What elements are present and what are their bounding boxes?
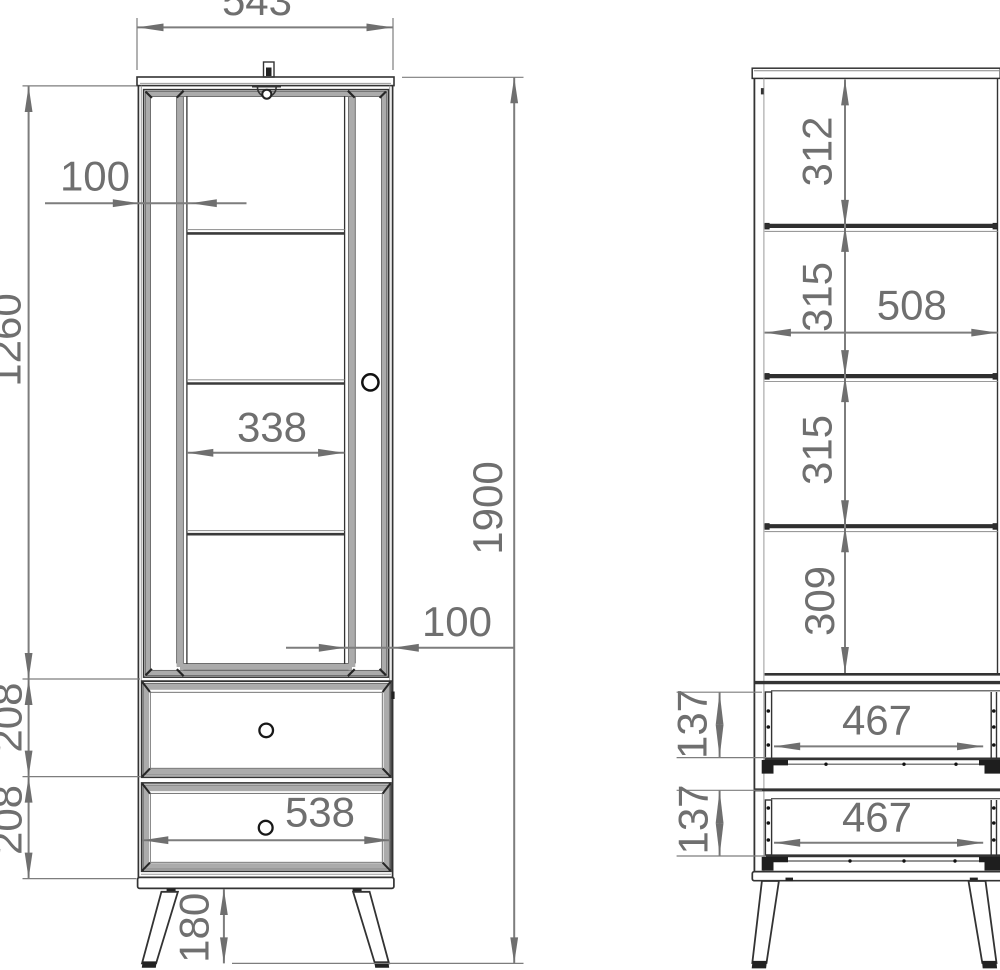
svg-text:309: 309 bbox=[796, 566, 843, 636]
svg-text:467: 467 bbox=[842, 697, 912, 744]
svg-text:180: 180 bbox=[170, 893, 217, 963]
svg-text:338: 338 bbox=[237, 404, 307, 451]
svg-text:538: 538 bbox=[285, 789, 355, 836]
svg-text:208: 208 bbox=[0, 785, 31, 855]
svg-text:100: 100 bbox=[422, 598, 492, 645]
svg-text:137: 137 bbox=[669, 689, 716, 759]
svg-text:315: 315 bbox=[794, 262, 841, 332]
svg-text:315: 315 bbox=[794, 415, 841, 485]
svg-text:1900: 1900 bbox=[464, 461, 511, 554]
svg-text:137: 137 bbox=[670, 784, 717, 854]
svg-text:543: 543 bbox=[222, 0, 292, 24]
svg-text:312: 312 bbox=[794, 116, 841, 186]
svg-text:100: 100 bbox=[60, 153, 130, 200]
svg-text:208: 208 bbox=[0, 683, 31, 753]
svg-text:467: 467 bbox=[842, 793, 912, 840]
svg-text:1260: 1260 bbox=[0, 293, 30, 386]
svg-text:508: 508 bbox=[877, 281, 947, 328]
